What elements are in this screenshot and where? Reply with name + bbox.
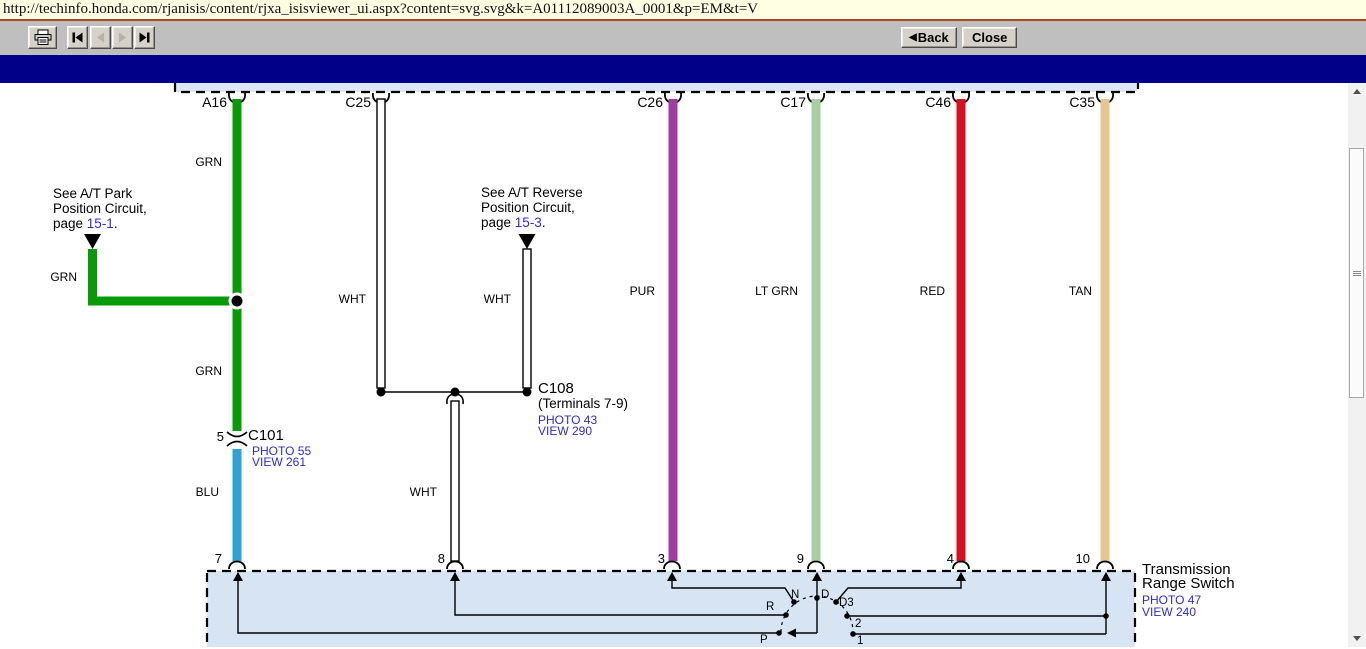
- wire-lower-white: [447, 394, 463, 561]
- upper-box-fill: [176, 83, 1137, 92]
- wire-color-label-grn: GRN: [27, 270, 77, 284]
- scrollbar-thumb[interactable]: [1349, 148, 1364, 398]
- wire-body: [233, 99, 242, 431]
- gear-position-2: 2: [855, 618, 861, 630]
- c108-view-link[interactable]: VIEW 290: [538, 424, 592, 438]
- contact-dot-d3: [833, 599, 839, 605]
- nav-next-button[interactable]: [112, 26, 133, 49]
- connector-half-icon: [227, 432, 247, 437]
- wire-c26-purple: [665, 93, 681, 561]
- junction-dot: [232, 296, 243, 307]
- gear-position-d: D: [821, 589, 829, 601]
- diagram-viewport: A16 C25 C26 C17 C46 C35 GRN GRN GRN WHT …: [0, 83, 1366, 647]
- wire-c35-tan: [1097, 93, 1113, 561]
- junction-dot: [377, 388, 386, 397]
- connector-half-icon: [227, 442, 247, 447]
- close-button-label: Close: [972, 30, 1007, 45]
- connector-label-c35[interactable]: C35: [1050, 94, 1095, 110]
- contact-dot-d: [814, 595, 820, 601]
- gear-position-p: P: [760, 634, 768, 646]
- wire-color-label-wht: WHT: [387, 485, 437, 499]
- connector-name-c101: C101: [248, 427, 284, 444]
- terminal-number-10: 10: [1062, 551, 1090, 566]
- contact-dot-2: [844, 613, 850, 619]
- gear-position-d3: D3: [839, 597, 854, 609]
- print-button[interactable]: [28, 26, 57, 49]
- wire-body: [669, 99, 678, 561]
- circuit-arrow-icon: [84, 234, 101, 249]
- back-arrow-icon: ◀: [909, 32, 917, 43]
- wire-color-label-lt-grn: LT GRN: [748, 284, 798, 298]
- print-icon: [33, 29, 53, 46]
- terminal-number-8: 8: [417, 551, 445, 566]
- contact-dot-1: [850, 631, 856, 637]
- wire-a16-green: [229, 93, 245, 431]
- nav-previous-button[interactable]: [90, 26, 111, 49]
- wire-body: [957, 99, 966, 561]
- note-line: See A/T Reverse: [481, 185, 583, 200]
- note-line: Position Circuit,: [53, 201, 147, 216]
- terminal-arc-icon: [664, 562, 680, 570]
- terminal-number-5: 5: [196, 429, 224, 444]
- terminal-arc-icon: [953, 562, 969, 570]
- wire-body: [523, 249, 531, 388]
- wire-color-label-wht: WHT: [316, 292, 366, 306]
- wire-color-label-grn: GRN: [172, 364, 222, 378]
- scroll-down-button[interactable]: [1348, 630, 1366, 647]
- wire-body: [812, 99, 821, 561]
- c101-view-link[interactable]: VIEW 261: [252, 455, 306, 469]
- c108-terminals-note: (Terminals 7-9): [538, 396, 628, 411]
- page-link-15-1[interactable]: 15-1: [87, 216, 114, 231]
- connector-label-c25[interactable]: C25: [326, 94, 371, 110]
- wire-body: [451, 401, 459, 561]
- upper-component-box: [175, 83, 1138, 92]
- viewer-toolbar: ◀ Back Close: [0, 21, 1366, 55]
- page-link-15-3[interactable]: 15-3: [515, 215, 542, 230]
- first-page-icon: [71, 31, 84, 44]
- junction-dot: [523, 388, 532, 397]
- gear-position-r: R: [766, 601, 774, 613]
- previous-page-icon: [94, 31, 107, 44]
- wire-color-label-tan: TAN: [1042, 284, 1092, 298]
- park-circuit-note: See A/T Park Position Circuit, page 15-1…: [53, 186, 147, 231]
- junction-dot: [1103, 613, 1109, 619]
- terminal-arc-icon: [808, 562, 824, 570]
- wire-c25-white: [373, 93, 389, 388]
- wire-c17-light-green: [808, 93, 824, 561]
- wire-color-label-grn: GRN: [172, 155, 222, 169]
- back-button-label: Back: [918, 30, 949, 45]
- wire-reverse-branch-white: [519, 234, 536, 388]
- wire-color-label-red: RED: [895, 284, 945, 298]
- terminal-number-7: 7: [194, 551, 222, 566]
- scroll-down-icon: [1353, 636, 1361, 641]
- terminal-number-9: 9: [776, 551, 804, 566]
- wire-color-label-pur: PUR: [605, 284, 655, 298]
- wire-body: [233, 449, 242, 561]
- reverse-circuit-note: See A/T Reverse Position Circuit, page 1…: [481, 185, 583, 230]
- note-line: Position Circuit,: [481, 200, 575, 215]
- back-button[interactable]: ◀ Back: [901, 27, 957, 48]
- wire-blue: [233, 449, 242, 561]
- wire-park-branch-green: [84, 234, 246, 310]
- range-switch-view-link[interactable]: VIEW 240: [1142, 605, 1196, 619]
- gear-position-n: N: [791, 589, 799, 601]
- switch-terminal-symbols: [229, 562, 1113, 570]
- scroll-up-icon: [1353, 89, 1361, 94]
- note-line: See A/T Park: [53, 186, 132, 201]
- terminal-arc-icon: [1097, 562, 1113, 570]
- scroll-up-button[interactable]: [1348, 83, 1366, 100]
- range-switch-box: [207, 571, 1135, 647]
- wire-body: [377, 99, 385, 388]
- last-page-icon: [138, 31, 151, 44]
- note-period: .: [114, 216, 118, 231]
- connector-name-c108: C108: [538, 380, 574, 397]
- wire-color-label-blu: BLU: [169, 485, 219, 499]
- connector-label-c26[interactable]: C26: [618, 94, 663, 110]
- vertical-scrollbar[interactable]: [1348, 83, 1366, 647]
- note-line: page: [481, 215, 515, 230]
- title-band: [0, 55, 1366, 83]
- connector-label-c46[interactable]: C46: [906, 94, 951, 110]
- terminal-arc-icon: [229, 562, 245, 570]
- circuit-arrow-icon: [519, 234, 536, 249]
- address-bar[interactable]: http://techinfo.honda.com/rjanisis/conte…: [0, 0, 1366, 21]
- range-switch-name: Range Switch: [1142, 575, 1235, 592]
- wire-color-label-wht: WHT: [461, 292, 511, 306]
- wire-c46-red: [953, 93, 969, 561]
- contact-dot-r: [783, 612, 789, 618]
- terminal-number-3: 3: [637, 551, 665, 566]
- wire-body: [1101, 99, 1110, 561]
- contact-dot-p: [776, 630, 782, 636]
- connector-label-a16[interactable]: A16: [182, 94, 227, 110]
- wire-body: [93, 249, 238, 301]
- wiring-diagram-canvas: A16 C25 C26 C17 C46 C35 GRN GRN GRN WHT …: [0, 83, 1348, 647]
- note-line: page: [53, 216, 87, 231]
- next-page-icon: [116, 31, 129, 44]
- scrollbar-grip-icon: [1353, 273, 1361, 274]
- page-url: http://techinfo.honda.com/rjanisis/conte…: [3, 1, 758, 17]
- junction-c108: [377, 388, 532, 397]
- nav-first-button[interactable]: [67, 26, 88, 49]
- gear-position-1: 1: [857, 635, 863, 647]
- nav-last-button[interactable]: [134, 26, 155, 49]
- range-switch-outline: [207, 571, 1135, 647]
- connector-label-c17[interactable]: C17: [761, 94, 806, 110]
- connector-c101-symbol: [227, 432, 247, 446]
- close-button[interactable]: Close: [962, 27, 1017, 48]
- note-period: .: [542, 215, 546, 230]
- terminal-number-4: 4: [926, 551, 954, 566]
- terminal-arc-icon: [447, 562, 463, 570]
